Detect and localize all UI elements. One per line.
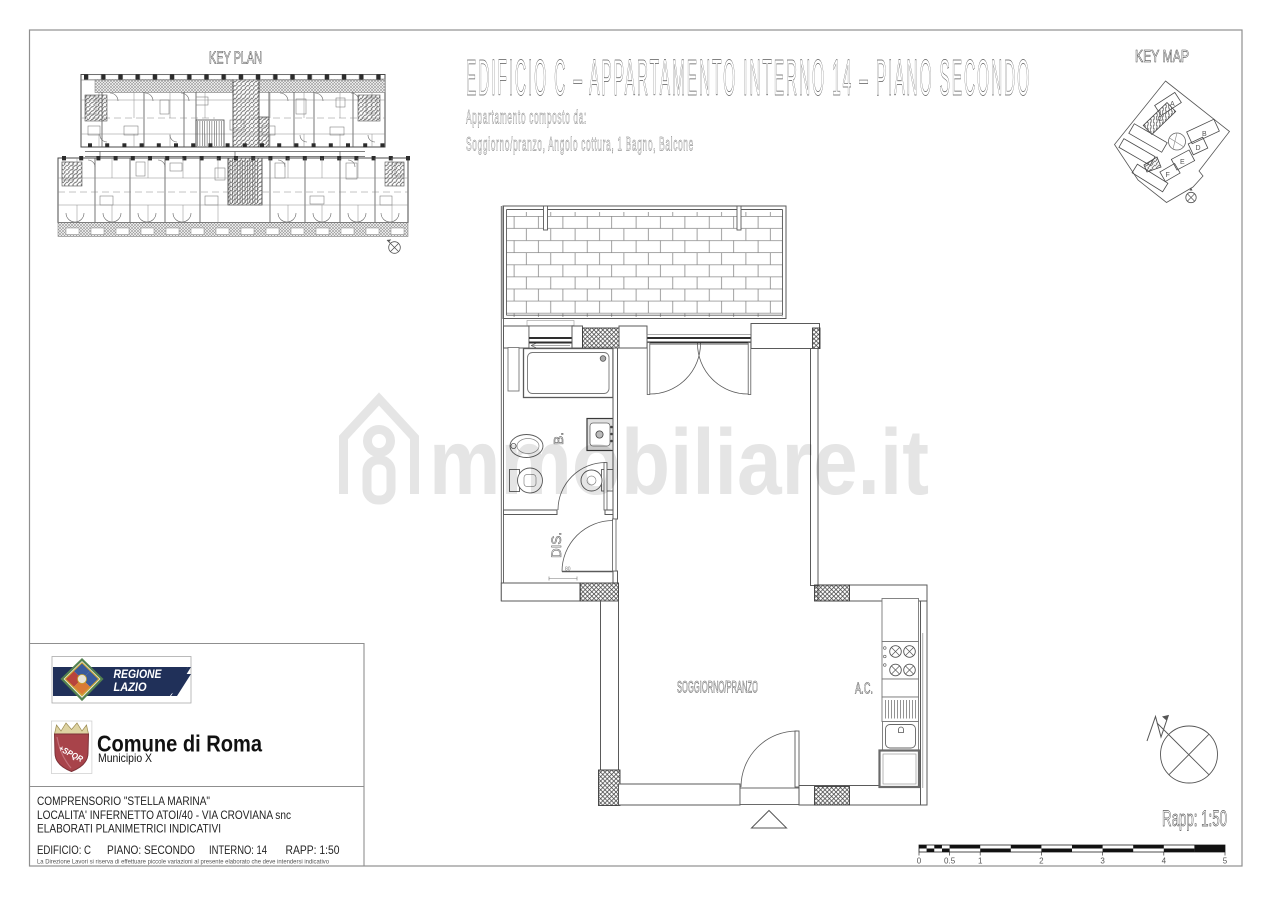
svg-text:mmobiliare.it: mmobiliare.it [429,410,929,514]
